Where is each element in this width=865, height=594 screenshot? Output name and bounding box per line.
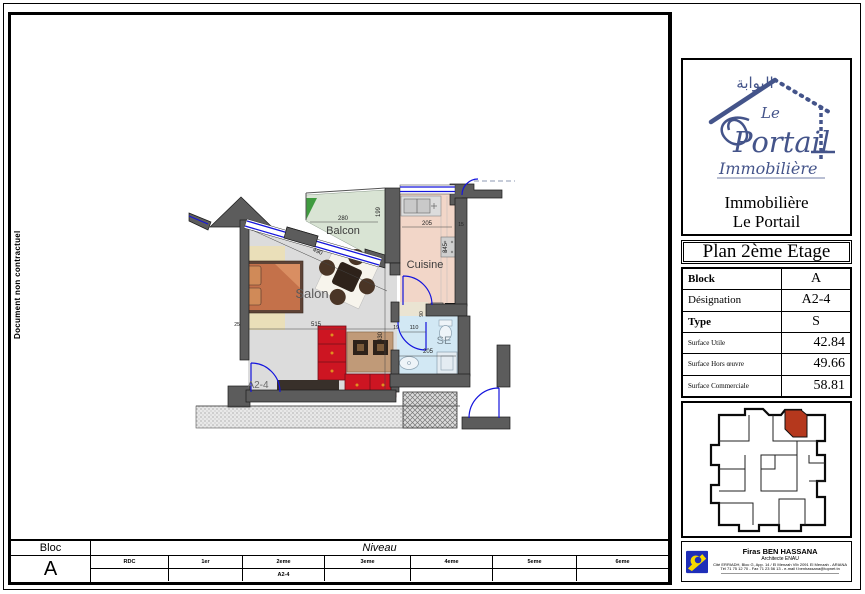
dim-se-w: 205 (423, 349, 434, 355)
building-outline (711, 409, 825, 531)
niveau-col: 2eme (242, 556, 325, 568)
row-label: Type (683, 312, 782, 332)
info-table: Block A Désignation A2-4 Type S Surface … (681, 267, 852, 398)
architect-contact: Firas BEN HASSANA Architecte ENAU Cité E… (713, 548, 847, 575)
table-row: Block A (683, 269, 850, 290)
firm-name-line1: Immobilière (683, 193, 850, 212)
stair-block (403, 392, 457, 428)
row-value: 58.81 (782, 376, 850, 396)
table-row: Type S (683, 312, 850, 333)
niveau-col: 6eme (576, 556, 668, 568)
niveau-grid: RDC 1er 2eme 3eme 4eme 5eme 6eme A2-4 (91, 556, 668, 581)
dim-cuisine-s: 15 (458, 222, 464, 228)
floor-plan: 280 199 205 15 345 490 515 25 430 19 110… (185, 162, 515, 438)
niveau-unit-cell: A2-4 (242, 569, 325, 581)
sidewalk (196, 406, 428, 428)
dim-hall-b: 110 (410, 325, 419, 331)
table-row: Surface Commerciale 58.81 (683, 376, 850, 396)
sheet-title: Plan 2ème Etage (681, 240, 852, 264)
row-value: A2-4 (782, 290, 850, 310)
row-label: Surface Hors œuvre (683, 354, 782, 374)
title-block-panel: البوابة Le Portail Immobilière Immobiliè… (668, 12, 853, 585)
niveau-col: 3eme (324, 556, 411, 568)
niveau-label: Niveau (91, 541, 668, 555)
niveau-col: RDC (90, 556, 169, 568)
niveau-col: 4eme (410, 556, 493, 568)
agency-logo-icon: البوابة Le Portail Immobilière (683, 60, 850, 188)
key-plan-drawing (683, 404, 850, 535)
architect-logo-icon (686, 546, 708, 578)
row-label: Surface Utile (683, 333, 782, 353)
row-label: Désignation (683, 290, 782, 310)
row-value: S (782, 312, 850, 332)
table-row: Surface Utile 42.84 (683, 333, 850, 354)
dim-balcon-d: 199 (376, 206, 382, 217)
dim-salon-w: 515 (311, 322, 322, 328)
row-value: 49.66 (782, 354, 850, 374)
divider (721, 573, 839, 575)
niveau-unit-cell (410, 569, 493, 581)
row-value: 42.84 (782, 333, 850, 353)
niveau-unit-cell (576, 569, 668, 581)
dim-cuisine-d: 345 (443, 242, 449, 253)
niveau-table: Bloc Niveau A RDC 1er 2eme 3eme 4eme 5em… (11, 539, 668, 581)
key-plan (681, 401, 852, 538)
label-balcon: Balcon (326, 225, 360, 237)
niveau-unit-cell (324, 569, 411, 581)
niveau-col: 1er (168, 556, 243, 568)
table-row: Désignation A2-4 (683, 290, 850, 311)
label-cuisine: Cuisine (407, 259, 444, 271)
table-row: Surface Hors œuvre 49.66 (683, 354, 850, 375)
architect-block: Firas BEN HASSANA Architecte ENAU Cité E… (681, 541, 852, 582)
side-note: Document non contractuel (13, 222, 28, 347)
label-salon: Salon (295, 286, 328, 301)
label-se: SE (437, 335, 452, 347)
dim-hall-c: 90 (419, 311, 425, 317)
corridor-door (469, 388, 499, 418)
row-label: Surface Commerciale (683, 376, 782, 396)
niveau-header: Bloc Niveau (11, 541, 668, 556)
dim-hall-a: 19 (393, 325, 399, 331)
logo-arabic: البوابة (736, 74, 773, 92)
bloc-header: Bloc (11, 541, 91, 555)
logo-le: Le (760, 104, 780, 122)
row-label: Block (683, 269, 782, 289)
dim-salon-s: 25 (234, 322, 240, 328)
niveau-unit-cell (90, 569, 169, 581)
plan-sheet: Document non contractuel (0, 0, 865, 594)
shower (437, 352, 457, 374)
architect-phone: Tél 71 75 12 70 - Fax 71 23 56 13 - e-ma… (713, 567, 847, 572)
niveau-unit-cell (492, 569, 577, 581)
label-unit: A2-4 (247, 380, 269, 391)
bloc-value: A (11, 556, 91, 583)
dim-balcon-w: 280 (338, 216, 349, 222)
row-value: A (782, 269, 850, 289)
niveau-unit-cell (168, 569, 243, 581)
niveau-columns-row: RDC 1er 2eme 3eme 4eme 5eme 6eme (91, 556, 668, 569)
niveau-units-row: A2-4 (91, 569, 668, 581)
logo-box: البوابة Le Portail Immobilière Immobiliè… (681, 58, 852, 236)
logo-immobiliere: Immobilière (718, 159, 817, 178)
firm-name-line2: Le Portail (683, 212, 850, 231)
niveau-col: 5eme (492, 556, 577, 568)
logo-portail: Portail (732, 125, 830, 159)
washbasin (400, 357, 419, 370)
dim-cuisine-w: 205 (422, 221, 433, 227)
highlighted-unit (785, 410, 807, 437)
dim-salon-d: 430 (378, 331, 384, 342)
